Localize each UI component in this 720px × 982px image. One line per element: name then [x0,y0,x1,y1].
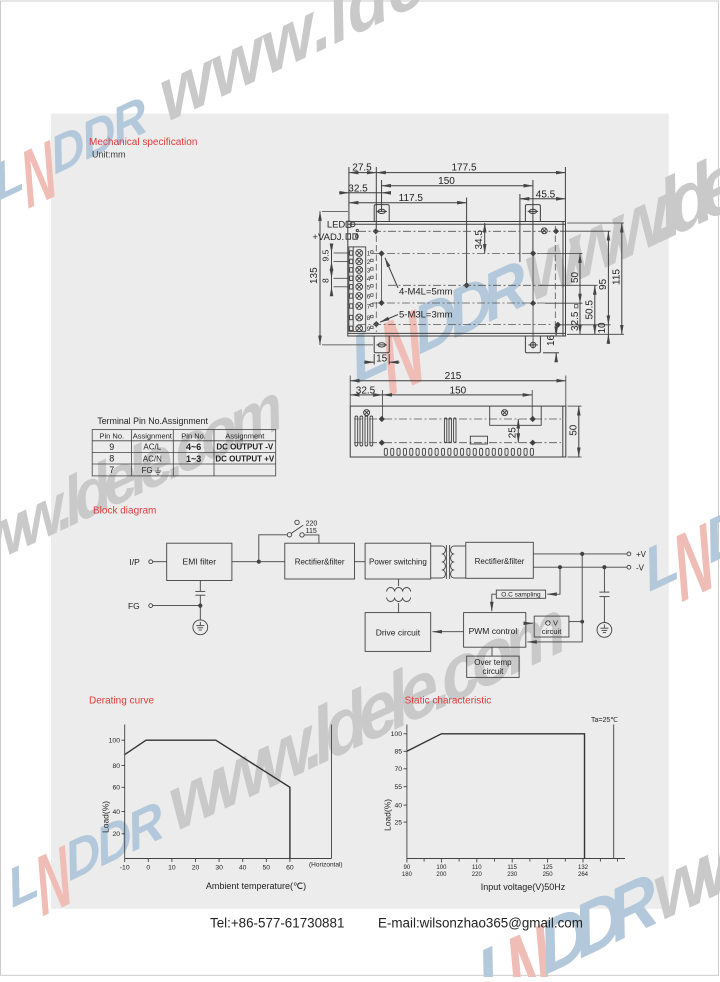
svg-text:Assignment: Assignment [133,431,173,440]
svg-text:40: 40 [112,809,120,816]
svg-text:Pin No.: Pin No. [99,431,124,440]
svg-text:2: 2 [367,259,371,266]
svg-text:-V: -V [636,563,645,572]
svg-text:180: 180 [402,872,413,878]
svg-text:Rectifier&filter: Rectifier&filter [475,557,525,566]
svg-text:34.5: 34.5 [474,230,485,250]
svg-text:6: 6 [367,294,371,301]
svg-text:16: 16 [546,334,557,346]
svg-text:132: 132 [578,865,589,871]
svg-text:95: 95 [598,278,609,290]
svg-text:125: 125 [543,865,554,871]
svg-text:+V: +V [636,550,647,559]
svg-text:Rectifier&filter: Rectifier&filter [295,558,345,567]
svg-text:32.5: 32.5 [348,183,368,194]
svg-text:FG: FG [128,601,140,611]
svg-text:Input voltage(V)50Hz: Input voltage(V)50Hz [481,882,566,892]
svg-text:Mechanical specification: Mechanical specification [89,137,197,148]
svg-text:0: 0 [146,865,150,872]
svg-text:115: 115 [306,528,317,535]
svg-text:O.C sampling: O.C sampling [501,592,541,599]
svg-text:220: 220 [472,872,483,878]
svg-text:5-M3L=3mm: 5-M3L=3mm [399,310,453,321]
svg-text:25: 25 [394,820,402,827]
svg-text:20: 20 [192,865,200,872]
svg-text:110: 110 [472,865,482,871]
svg-text:E-mail:wilsonzhao365@gmail.com: E-mail:wilsonzhao365@gmail.com [378,916,583,931]
svg-text:32.5: 32.5 [570,311,581,331]
svg-text:150: 150 [438,176,455,187]
svg-text:215: 215 [445,371,462,382]
svg-text:115: 115 [611,269,622,285]
svg-text:7: 7 [109,465,114,475]
svg-text:115: 115 [507,865,517,871]
svg-text:Over temp: Over temp [474,658,512,667]
svg-text:117.5: 117.5 [399,193,424,204]
svg-text:177.5: 177.5 [451,163,476,174]
svg-text:Static characteristic: Static characteristic [405,695,492,706]
svg-text:Ta=25℃: Ta=25℃ [591,717,618,724]
svg-text:5: 5 [367,284,371,291]
svg-text:70: 70 [394,766,402,773]
svg-text:20: 20 [112,831,120,838]
svg-text:Derating curve: Derating curve [89,695,154,706]
svg-text:60: 60 [286,865,294,872]
svg-text:AC/L: AC/L [143,443,161,452]
svg-text:Block diagram: Block diagram [93,506,156,517]
svg-text:7: 7 [367,304,371,311]
svg-text:8: 8 [109,454,114,464]
svg-text:50: 50 [570,271,581,283]
svg-text:Load(%): Load(%) [383,799,393,831]
svg-text:85: 85 [394,749,402,756]
svg-text:FG: FG [141,466,152,475]
svg-text:50.5: 50.5 [585,300,596,320]
svg-text:Tel:+86-577-61730881: Tel:+86-577-61730881 [210,916,344,931]
svg-text:PWM control: PWM control [469,626,518,636]
svg-text:Terminal Pin No.Assignment: Terminal Pin No.Assignment [97,416,208,426]
svg-text:3: 3 [367,268,371,275]
svg-text:80: 80 [112,763,120,770]
svg-text:10: 10 [597,322,608,334]
svg-text:I/P: I/P [129,557,140,567]
svg-text:4: 4 [367,276,371,283]
svg-text:100: 100 [109,738,121,745]
svg-text:Load(%): Load(%) [101,801,111,833]
svg-text:-10: -10 [120,865,130,872]
svg-text:250: 250 [543,872,554,878]
svg-text:32.5: 32.5 [356,386,376,397]
svg-text:135: 135 [309,267,320,284]
svg-text:60: 60 [112,785,120,792]
svg-text:264: 264 [578,872,589,878]
svg-text:100: 100 [436,865,447,871]
svg-text:9: 9 [109,442,114,452]
svg-text:9: 9 [367,326,371,333]
svg-text:Ambient temperature(℃): Ambient temperature(℃) [206,881,306,891]
svg-text:100: 100 [391,731,403,738]
svg-text:4-M4L=5mm: 4-M4L=5mm [399,286,453,297]
svg-text:DC OUTPUT -V: DC OUTPUT -V [216,443,274,452]
svg-text:220: 220 [306,520,318,527]
svg-text:Assignment: Assignment [225,431,265,440]
svg-text:8: 8 [367,315,371,322]
svg-text:27.5: 27.5 [352,163,372,174]
svg-text:30: 30 [215,865,223,872]
svg-text:DC OUTPUT +V: DC OUTPUT +V [215,454,275,463]
svg-text:8: 8 [321,278,331,283]
svg-text:200: 200 [436,872,447,878]
svg-text:15: 15 [376,354,388,365]
svg-text:150: 150 [450,386,467,397]
svg-text:40: 40 [239,865,247,872]
svg-text:EMI filter: EMI filter [183,557,217,567]
svg-text:50: 50 [568,424,579,436]
svg-text:1: 1 [367,251,371,258]
svg-text:1~3: 1~3 [186,454,201,464]
svg-text:50: 50 [263,865,271,872]
svg-text:(Horizontal): (Horizontal) [309,862,343,869]
svg-text:4~6: 4~6 [186,442,201,452]
svg-text:55: 55 [394,784,402,791]
svg-text:Drive circuit: Drive circuit [376,627,421,637]
svg-text:90: 90 [404,865,411,871]
svg-text:10: 10 [168,865,176,872]
svg-text:Pin No.: Pin No. [181,431,206,440]
svg-text:Unit:mm: Unit:mm [92,150,126,160]
svg-text:circuit: circuit [482,667,504,676]
svg-text:40: 40 [394,803,402,810]
svg-text:Power switching: Power switching [369,558,427,567]
svg-text:25: 25 [508,427,519,439]
svg-text:9.5: 9.5 [321,249,331,261]
svg-text:+VADJ.: +VADJ. [312,232,344,243]
svg-text:LED: LED [327,219,346,230]
svg-text:45.5: 45.5 [536,189,556,200]
svg-text:AC/N: AC/N [143,454,162,463]
svg-text:230: 230 [507,872,518,878]
svg-text:circuit: circuit [542,627,563,636]
